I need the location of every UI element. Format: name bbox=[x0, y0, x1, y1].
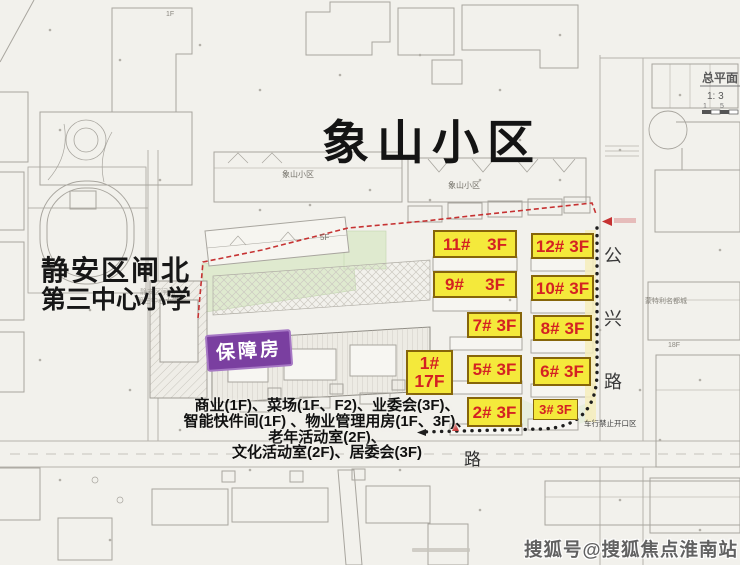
building-id: 7# bbox=[473, 317, 492, 334]
building-floors: 3F bbox=[569, 280, 589, 297]
gongxing-road-label: 公 兴 路 bbox=[603, 242, 623, 394]
building-id: 11# bbox=[443, 236, 470, 253]
building-label-7: 7#3F bbox=[467, 312, 522, 338]
building-label-12: 12#3F bbox=[531, 233, 594, 259]
floor-1f-label: 1F bbox=[166, 11, 174, 18]
building-floors: 3F bbox=[487, 236, 507, 253]
entrance-note-red bbox=[614, 218, 636, 223]
affordable-housing-badge: 保障房 bbox=[205, 329, 293, 372]
plan-name-label: 总平面 bbox=[702, 70, 738, 85]
xiangshan-small-label-a: 象山小区 bbox=[282, 169, 314, 179]
facilities-line4: 文化活动室(2F)、居委会(3F) bbox=[176, 445, 478, 461]
scalebar-tick-right: 5 bbox=[720, 103, 724, 110]
building-label-5: 5#3F bbox=[467, 355, 522, 384]
facilities-line2: 智能快件间(1F) 、物业管理用房(1F、3F)、 bbox=[176, 414, 478, 430]
titleblock: 总平面 1: 3 1 5 bbox=[700, 70, 740, 114]
building-id: 9# bbox=[445, 276, 464, 293]
page-title: 象山小区 bbox=[322, 104, 542, 173]
xiangshan-small-label-b: 象山小区 bbox=[448, 180, 480, 190]
building-label-1: 1#17F bbox=[406, 350, 453, 395]
road-char: 兴 bbox=[603, 305, 623, 331]
building-id: 1# bbox=[420, 355, 439, 373]
road-char: 公 bbox=[603, 242, 623, 268]
floor-5f-label: 5F bbox=[320, 233, 329, 242]
building-id: 3# bbox=[539, 403, 553, 416]
building-id: 10# bbox=[536, 280, 564, 297]
building-floors: 3F bbox=[565, 320, 585, 337]
entrance-marker-east-icon bbox=[602, 217, 612, 226]
road-char: 路 bbox=[603, 368, 623, 394]
building-id: 5# bbox=[473, 361, 492, 378]
scalebar bbox=[702, 110, 738, 114]
facilities-line1: 商业(1F)、菜场(1F、F2)、业委会(3F)、 bbox=[176, 398, 478, 414]
building-label-3: 3#3F bbox=[533, 399, 578, 420]
no-vehicle-opening-label: 车行禁止开口区 bbox=[584, 418, 637, 428]
building-floors: 3F bbox=[569, 238, 589, 255]
facilities-annotation: 商业(1F)、菜场(1F、F2)、业委会(3F)、 智能快件间(1F) 、物业管… bbox=[176, 398, 478, 461]
building-floors: 3F bbox=[497, 404, 517, 421]
school-name-label: 静安区闸北 第三中心小学 bbox=[26, 256, 206, 314]
mengteli-label: 蒙特利名都城 bbox=[645, 296, 687, 305]
building-floors: 3F bbox=[497, 361, 517, 378]
plan-scale-label: 1: 3 bbox=[707, 91, 724, 102]
watermark: 搜狐号@搜狐焦点淮南站 bbox=[524, 536, 738, 562]
building-id: 8# bbox=[541, 320, 560, 337]
school-name-line2: 第三中心小学 bbox=[26, 287, 206, 315]
building-floors: 3F bbox=[557, 403, 572, 416]
building-label-11: 11#3F bbox=[433, 230, 517, 258]
floor-18f-label: 18F bbox=[668, 342, 680, 349]
scalebar-tick-left: 1 bbox=[703, 103, 707, 110]
building-id: 12# bbox=[536, 238, 564, 255]
building-label-6: 6#3F bbox=[533, 357, 591, 386]
building-label-9: 9#3F bbox=[433, 271, 517, 298]
building-floors: 3F bbox=[485, 276, 505, 293]
site-plan-screenshot: 象山小区 象山小区 5F 1F 18F 蒙特利名都城 车行禁止开口区 静安区闸北… bbox=[0, 0, 740, 565]
building-label-8: 8#3F bbox=[533, 315, 592, 341]
building-floors: 3F bbox=[497, 317, 517, 334]
building-floors: 3F bbox=[564, 363, 584, 380]
south-road-label: 路 bbox=[464, 445, 481, 470]
building-label-10: 10#3F bbox=[531, 275, 594, 301]
building-floors: 17F bbox=[414, 373, 444, 391]
building-id: 6# bbox=[540, 363, 559, 380]
school-name-line1: 静安区闸北 bbox=[26, 256, 206, 287]
